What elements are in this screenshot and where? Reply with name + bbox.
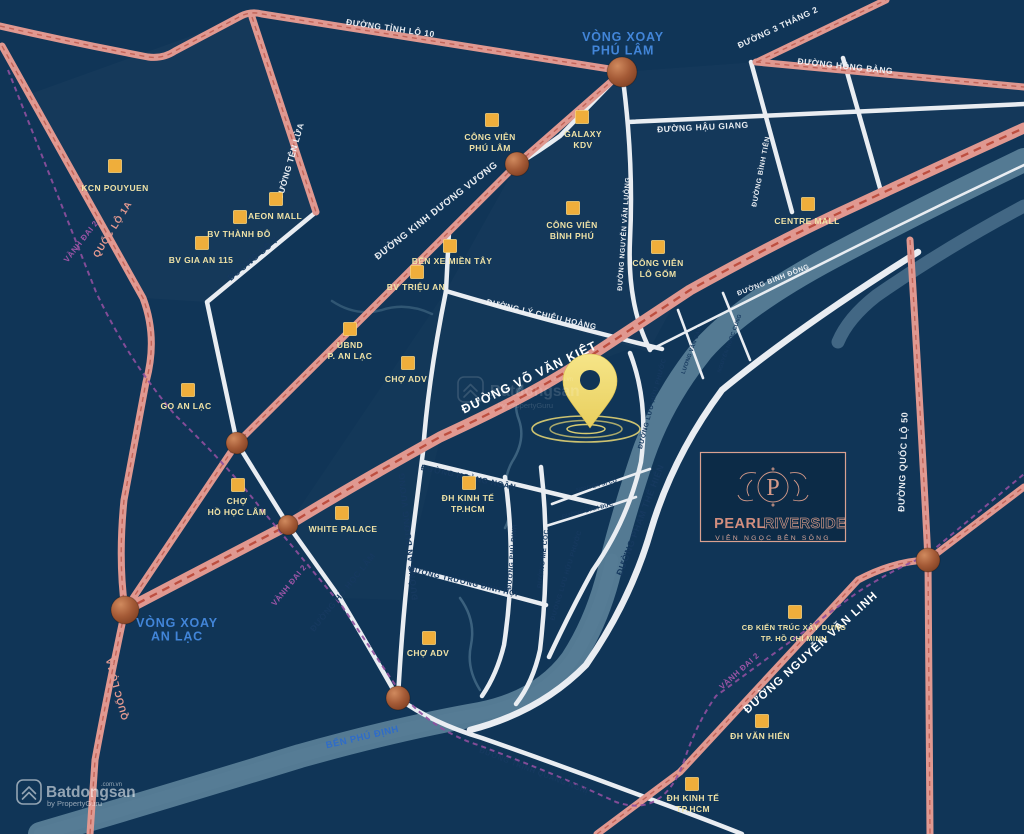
poi-label: ĐH VĂN HIẾN (730, 731, 790, 741)
watermark-domain: .com.vn (552, 377, 573, 383)
poi-marker-icon (756, 715, 769, 728)
logo-name-secondary: RIVERSIDE (764, 516, 847, 532)
poi-label: GO AN LẠC (161, 401, 212, 411)
map-canvas: ĐƯỜNG TỈNH LỘ 10ĐƯỜNG 3 THÁNG 2ĐƯỜNG HỒN… (0, 0, 1024, 834)
location-map: ĐƯỜNG TỈNH LỘ 10ĐƯỜNG 3 THÁNG 2ĐƯỜNG HỒN… (0, 0, 1024, 834)
poi-marker-icon (463, 477, 476, 490)
poi-marker-icon (196, 237, 209, 250)
poi-label: CHỢ ADV (385, 374, 427, 384)
watermark-domain: .com.vn (101, 782, 122, 788)
poi-marker-icon (109, 160, 122, 173)
roundabout-label-vong-xoay-phu-lam: VÒNG XOAYPHÚ LÂM (582, 29, 664, 58)
junction-node (278, 515, 298, 535)
logo-tagline: VIÊN NGỌC BÊN SÔNG (715, 533, 831, 542)
poi-label: WHITE PALACE (309, 524, 378, 534)
logo-monogram: P (766, 475, 779, 501)
poi-marker-icon (686, 778, 699, 791)
poi-marker-icon (567, 202, 580, 215)
poi-label: BV THÀNH ĐÔ (207, 228, 270, 239)
watermark-byline: by PropertyGuru (498, 401, 553, 410)
junction-node (111, 596, 139, 624)
poi-marker-icon (182, 384, 195, 397)
poi-label: AEON MALL (248, 211, 302, 221)
watermark-byline: by PropertyGuru (47, 799, 102, 808)
junction-node (386, 686, 410, 710)
map-pin-hole (580, 370, 600, 390)
logo-name-primary: PEARL (714, 516, 766, 532)
junction-node (505, 152, 529, 176)
poi-marker-icon (336, 507, 349, 520)
poi-label: CHỢ ADV (407, 648, 449, 658)
watermark-brand: Batdongsan (490, 383, 580, 400)
project-logo-card: P PEARL RIVERSIDE VIÊN NGỌC BÊN SÔNG (701, 453, 847, 543)
poi-marker-icon (486, 114, 499, 127)
junction-node (916, 548, 940, 572)
poi-label: BẾN XE MIỀN TÂY (412, 255, 493, 266)
poi-label: CENTRE MALL (774, 216, 839, 226)
poi-marker-icon (423, 632, 436, 645)
poi-marker-icon (444, 240, 457, 253)
poi-marker-icon (402, 357, 415, 370)
poi-marker-icon (232, 479, 245, 492)
poi-label: BV GIA AN 115 (169, 255, 234, 265)
poi-marker-icon (802, 198, 815, 211)
poi-label: BV TRIỆU AN (387, 281, 445, 292)
poi-marker-icon (576, 111, 589, 124)
poi-marker-icon (270, 193, 283, 206)
poi-marker-icon (652, 241, 665, 254)
poi-marker-icon (234, 211, 247, 224)
junction-node (607, 57, 637, 87)
poi-marker-icon (789, 606, 802, 619)
poi-marker-icon (411, 266, 424, 279)
poi-label: KCN POUYUEN (81, 183, 148, 193)
poi-marker-icon (344, 323, 357, 336)
junction-node (226, 432, 248, 454)
